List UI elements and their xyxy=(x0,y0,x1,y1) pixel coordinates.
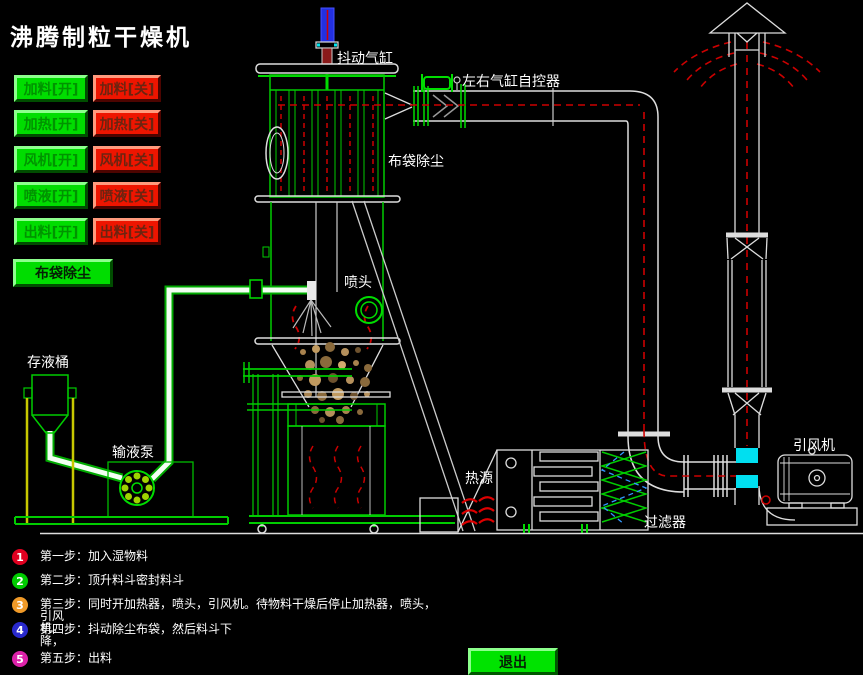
step-4-badge: 4 xyxy=(12,622,28,638)
step-2-text: 第二步：顶升料斗密封料斗 xyxy=(40,574,440,586)
step-3-badge: 3 xyxy=(12,597,28,613)
draft-fan xyxy=(759,448,857,525)
step-2-badge: 2 xyxy=(12,573,28,589)
liquid-pipe xyxy=(50,280,308,479)
step-1-badge: 1 xyxy=(12,549,28,565)
label-nozzle: 喷头 xyxy=(344,275,372,291)
label-filter: 过滤器 xyxy=(644,515,686,531)
step-1: 1 第一步：加入湿物料 xyxy=(12,550,440,565)
granule-particles xyxy=(297,342,372,424)
label-draft-fan: 引风机 xyxy=(793,438,835,454)
step-5-badge: 5 xyxy=(12,651,28,667)
down-duct xyxy=(618,117,736,497)
tower-lid xyxy=(256,64,398,90)
top-duct xyxy=(385,84,658,128)
hmi-screen: 沸腾制粒干燥机 加料[开] 加料[关] 加热[开] 加热[关] 风机[开] 风机… xyxy=(0,0,863,675)
cylinder-actuator xyxy=(422,74,460,92)
step-5: 5 第五步：出料 xyxy=(12,652,440,667)
step-1-text: 第一步：加入湿物料 xyxy=(40,550,440,562)
step-2: 2 第二步：顶升料斗密封料斗 xyxy=(12,574,440,589)
label-pump: 输液泵 xyxy=(112,445,154,461)
exit-button[interactable]: 退出 xyxy=(468,648,558,675)
step-5-text: 第五步：出料 xyxy=(40,652,440,664)
heat-flames xyxy=(462,497,494,525)
label-cylinder-ctrl: 左右气缸自控器 xyxy=(462,73,560,90)
liquid-pump xyxy=(15,462,228,524)
damper-valve xyxy=(736,448,758,488)
step-4: 4 第四步：抖动除尘布袋，然后料斗下 降， xyxy=(12,623,440,647)
label-tank: 存液桶 xyxy=(27,355,69,371)
shaker-cylinder xyxy=(316,8,338,64)
label-heat-source: 热源 xyxy=(465,471,493,487)
label-baghouse: 布袋除尘 xyxy=(388,154,444,170)
label-shaker: 抖动气缸 xyxy=(337,50,393,67)
step-4-text: 第四步：抖动除尘布袋，然后料斗下 降， xyxy=(40,623,440,647)
